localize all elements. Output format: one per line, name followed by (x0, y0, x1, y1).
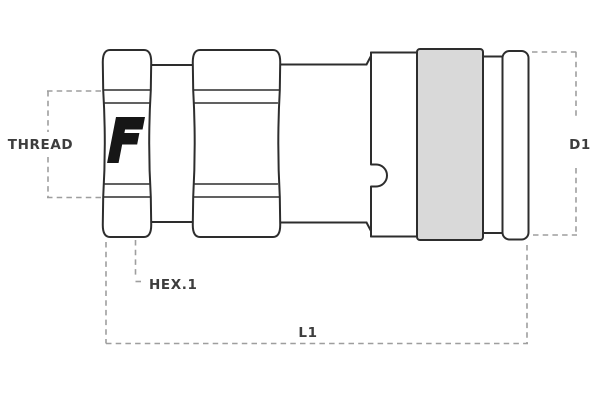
sleeve-neck (483, 57, 503, 234)
d1-label: D1 (569, 137, 591, 153)
hex-nut-1 (103, 50, 151, 237)
body-cylinder (279, 56, 371, 231)
body-face-with-notch (371, 53, 387, 237)
hex1-label: HEX.1 (149, 277, 197, 293)
connector-cylinder (151, 65, 194, 222)
thread-label: THREAD (8, 137, 73, 153)
release-sleeve-band (417, 49, 483, 240)
technical-drawing-canvas: THREAD HEX.1 L1 D1 (0, 0, 600, 400)
hex1-leader-line (136, 240, 145, 282)
valve-body (371, 53, 418, 237)
coupling-diagram: THREAD HEX.1 L1 D1 (0, 0, 600, 400)
l1-label: L1 (298, 325, 317, 341)
hex-nut-2 (193, 50, 280, 237)
end-ring (503, 51, 529, 240)
